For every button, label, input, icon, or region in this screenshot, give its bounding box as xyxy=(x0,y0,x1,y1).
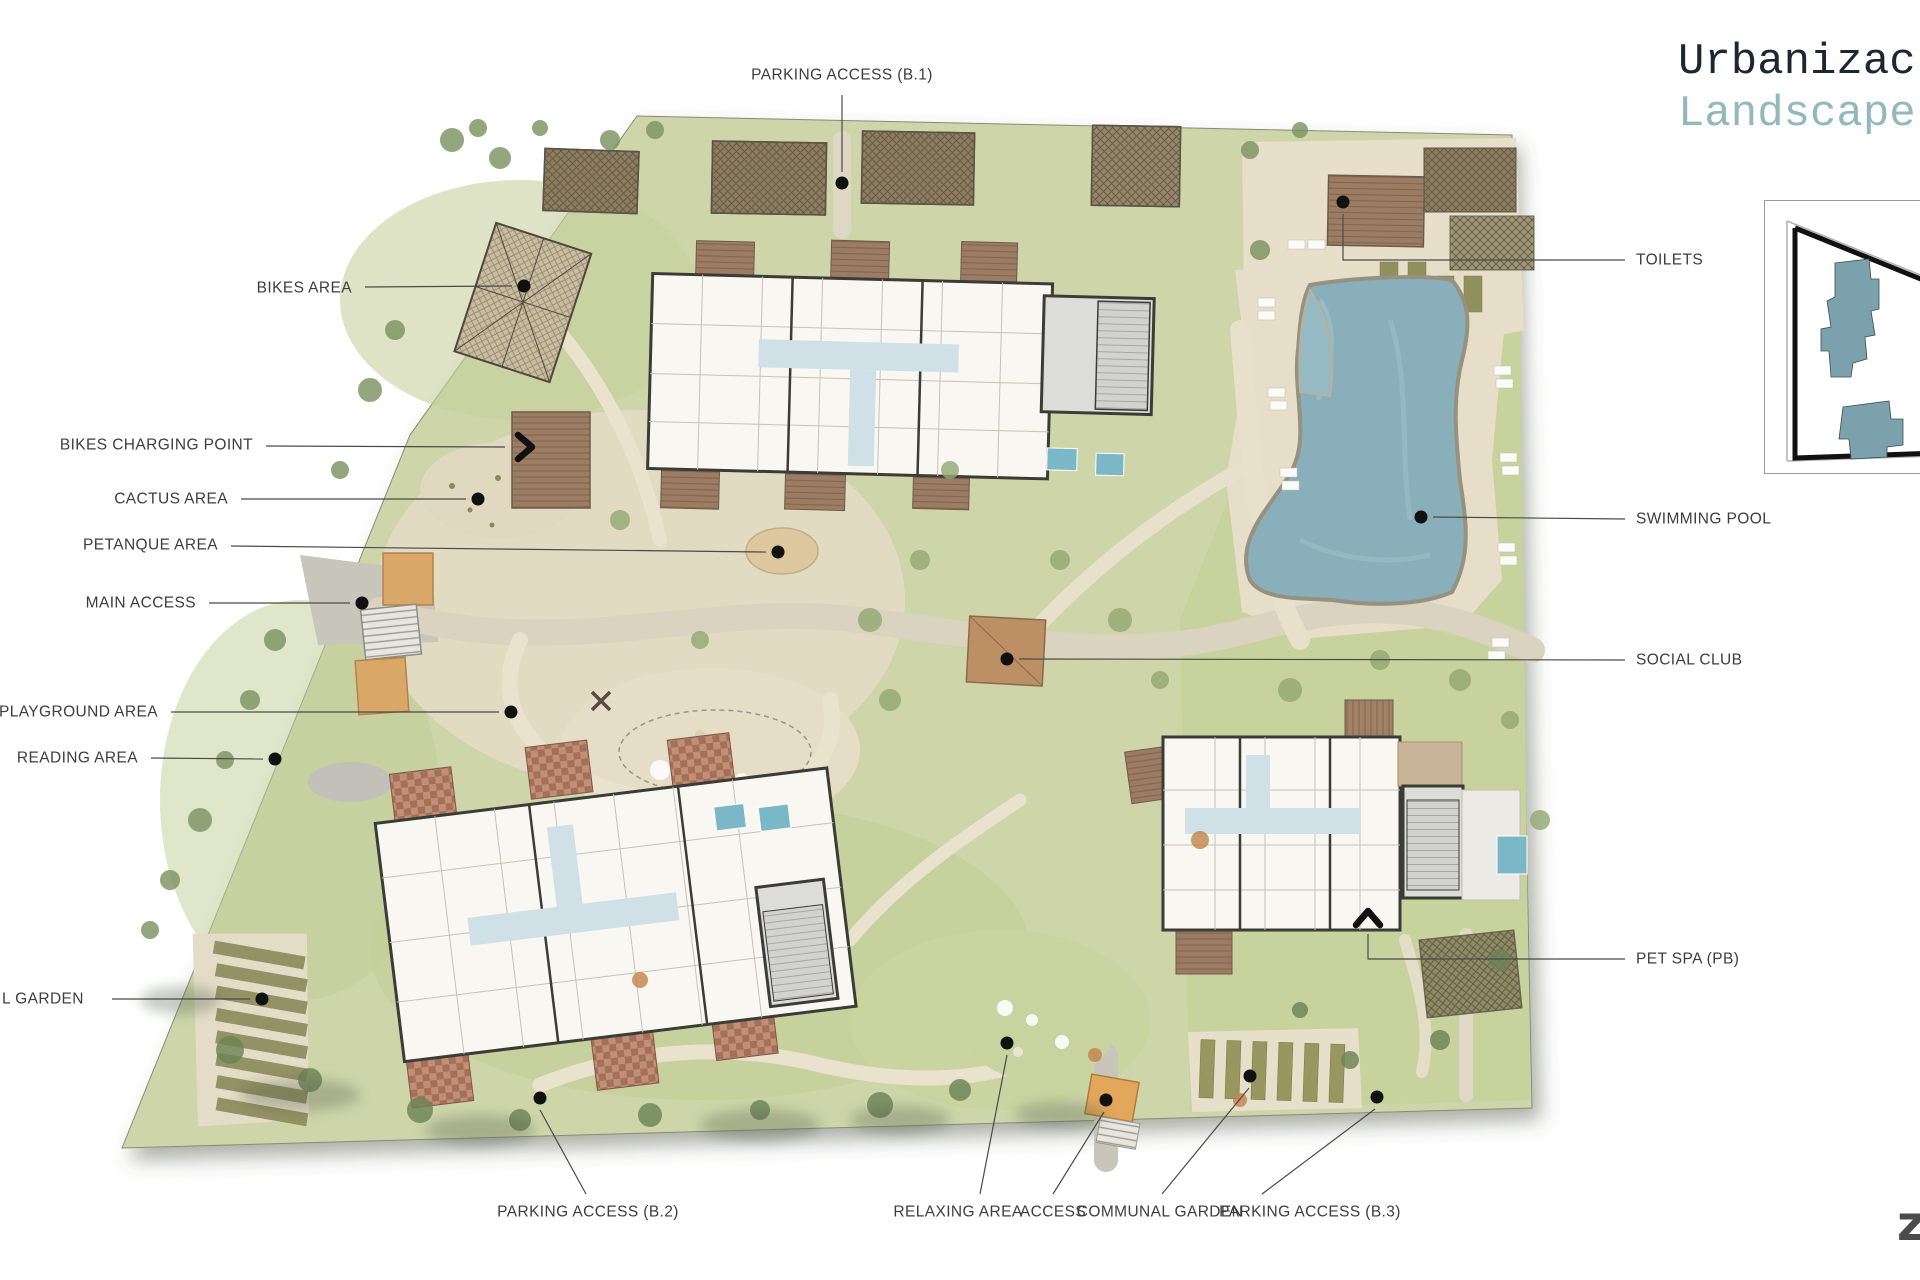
marker-dot-playground-area xyxy=(505,706,518,719)
chevron-right-icon-bikes-charging-point xyxy=(518,435,532,459)
marker-dot-social-club xyxy=(1001,653,1014,666)
marker-dot-access xyxy=(1100,1094,1113,1107)
marker-dot-reading-area xyxy=(269,753,282,766)
marker-dot-communal-garden-left xyxy=(256,993,269,1006)
leader-line-parking-access-b2 xyxy=(540,1110,586,1194)
leader-overlay xyxy=(0,0,1920,1280)
leader-line-bikes-area xyxy=(365,286,512,287)
marker-dot-swimming-pool xyxy=(1415,511,1428,524)
leader-line-toilets xyxy=(1343,214,1625,260)
leader-line-relaxing-area xyxy=(980,1055,1007,1194)
title-line-2: Landscape xyxy=(1678,88,1916,140)
marker-dot-bikes-area xyxy=(518,280,531,293)
leader-line-pet-spa xyxy=(1368,934,1625,959)
leader-line-parking-access-b3 xyxy=(1262,1109,1375,1194)
leader-line-social-club xyxy=(1019,659,1625,660)
marker-dot-parking-access-b1 xyxy=(836,177,849,190)
marker-dot-petanque-area xyxy=(772,546,785,559)
leader-line-swimming-pool xyxy=(1433,517,1625,519)
corner-logo-mark: z xyxy=(1897,1200,1920,1248)
key-plan-inset xyxy=(1764,200,1920,474)
leader-line-communal-garden xyxy=(1162,1088,1249,1194)
leader-line-access xyxy=(1053,1112,1104,1194)
marker-dot-cactus-area xyxy=(472,493,485,506)
marker-dot-parking-access-b2 xyxy=(534,1092,547,1105)
leader-line-bikes-charging-point xyxy=(266,446,505,447)
marker-dot-relaxing-area xyxy=(1001,1037,1014,1050)
title-block: Urbanizac Landscape xyxy=(1678,36,1916,140)
leader-line-reading-area xyxy=(151,758,263,759)
marker-dot-parking-access-b3 xyxy=(1371,1091,1384,1104)
marker-dot-communal-garden xyxy=(1244,1070,1257,1083)
leader-line-petanque-area xyxy=(231,546,766,552)
marker-dot-main-access xyxy=(356,597,369,610)
chevron-up-icon-pet-spa xyxy=(1356,911,1380,925)
masterplan-canvas: BIKES AREABIKES CHARGING POINTCACTUS ARE… xyxy=(0,0,1920,1280)
title-line-1: Urbanizac xyxy=(1678,36,1916,88)
marker-dot-toilets xyxy=(1337,196,1350,209)
key-plan-drawing xyxy=(1765,201,1920,473)
